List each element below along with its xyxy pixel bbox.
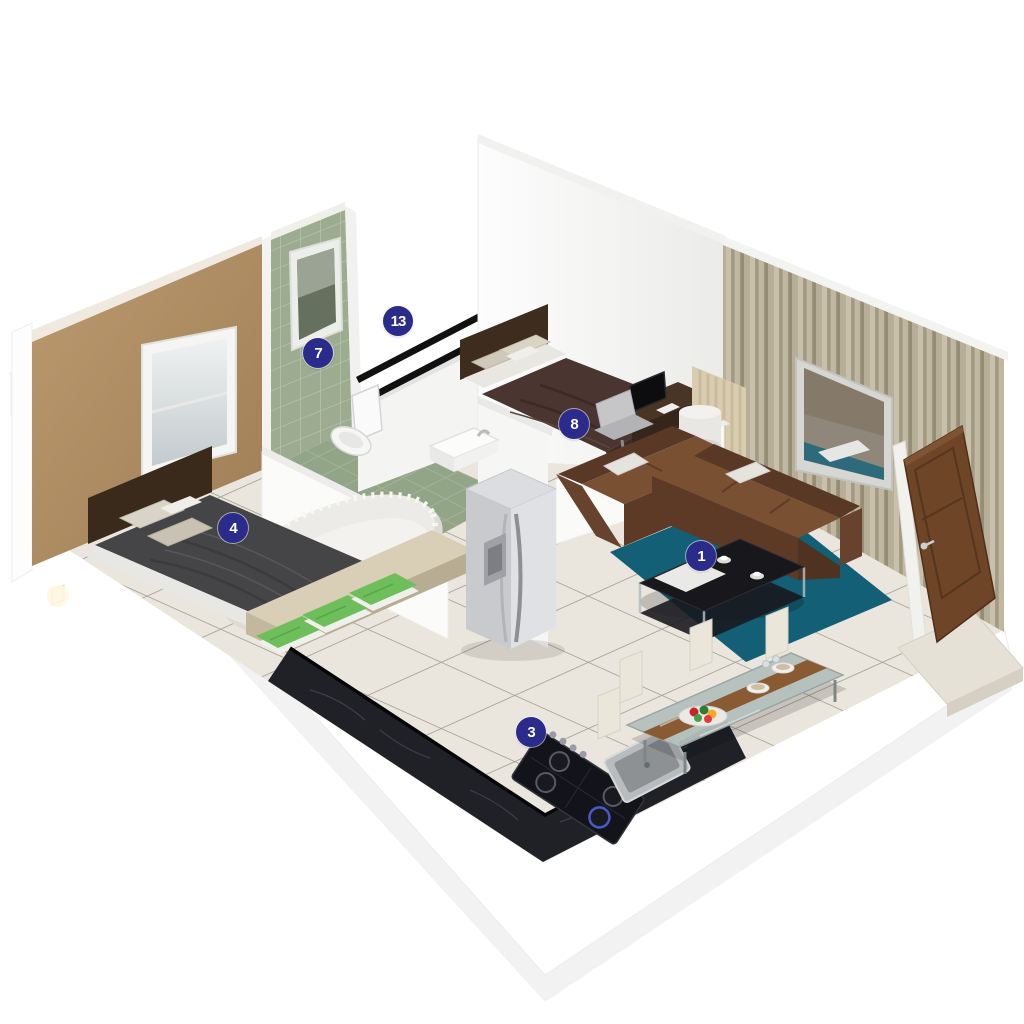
sofa-right-arm bbox=[840, 508, 862, 566]
bowl-1-food bbox=[751, 684, 765, 690]
marker-living-room: 1 bbox=[686, 541, 716, 571]
fruit-green-2 bbox=[694, 714, 702, 722]
dining-chair-1 bbox=[598, 687, 620, 739]
cup-1 bbox=[720, 556, 728, 560]
dining-chair-4 bbox=[766, 607, 788, 659]
cup-2 bbox=[753, 572, 761, 576]
marker-master-bedroom: 4 bbox=[218, 513, 248, 543]
outer-wall-left-strip bbox=[12, 323, 32, 582]
fruit-green bbox=[700, 706, 709, 715]
marker-second-bedroom: 8 bbox=[559, 409, 589, 439]
dining-chair-3 bbox=[690, 619, 712, 671]
fruit-red-2 bbox=[704, 715, 712, 723]
dining-chair-2 bbox=[620, 651, 642, 703]
floor-plan-render bbox=[0, 0, 1024, 1024]
glass-1 bbox=[763, 661, 770, 668]
sconce-glow bbox=[47, 585, 69, 607]
wall-trim bbox=[262, 236, 271, 470]
glass-2 bbox=[773, 656, 780, 663]
bowl-2-food bbox=[776, 664, 790, 670]
marker-service-shaft: 13 bbox=[383, 306, 413, 336]
lamp-shade-top bbox=[679, 405, 721, 419]
marker-kitchen: 3 bbox=[516, 717, 546, 747]
floor-plan-screenshot: 1 3 4 7 8 13 bbox=[0, 0, 1024, 1024]
marker-bathroom: 7 bbox=[303, 338, 333, 368]
